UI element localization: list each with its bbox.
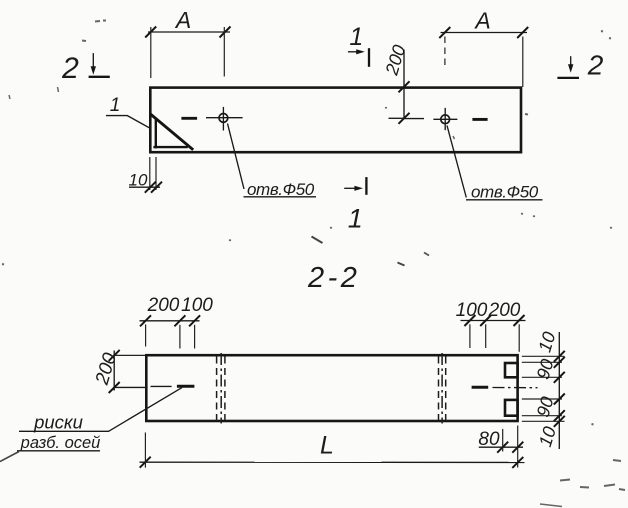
svg-text:100: 100 <box>181 295 213 316</box>
svg-text:1: 1 <box>348 204 363 234</box>
svg-text:A: A <box>473 8 490 34</box>
svg-text:L: L <box>320 432 334 460</box>
svg-text:80: 80 <box>478 429 500 450</box>
svg-text:2: 2 <box>587 50 604 81</box>
svg-text:100: 100 <box>456 300 488 321</box>
svg-text:риски: риски <box>33 412 83 433</box>
svg-text:отв.Ф50: отв.Ф50 <box>247 180 315 199</box>
svg-text:1: 1 <box>349 23 363 51</box>
svg-text:10: 10 <box>129 171 148 190</box>
svg-text:2: 2 <box>61 52 79 85</box>
svg-text:A: A <box>174 7 191 33</box>
svg-text:200: 200 <box>147 295 180 316</box>
svg-text:разб. осей: разб. осей <box>20 434 101 452</box>
svg-text:200: 200 <box>488 300 521 321</box>
svg-text:1: 1 <box>110 95 121 116</box>
svg-text:отв.Ф50: отв.Ф50 <box>471 183 539 202</box>
svg-text:2-2: 2-2 <box>307 262 360 294</box>
